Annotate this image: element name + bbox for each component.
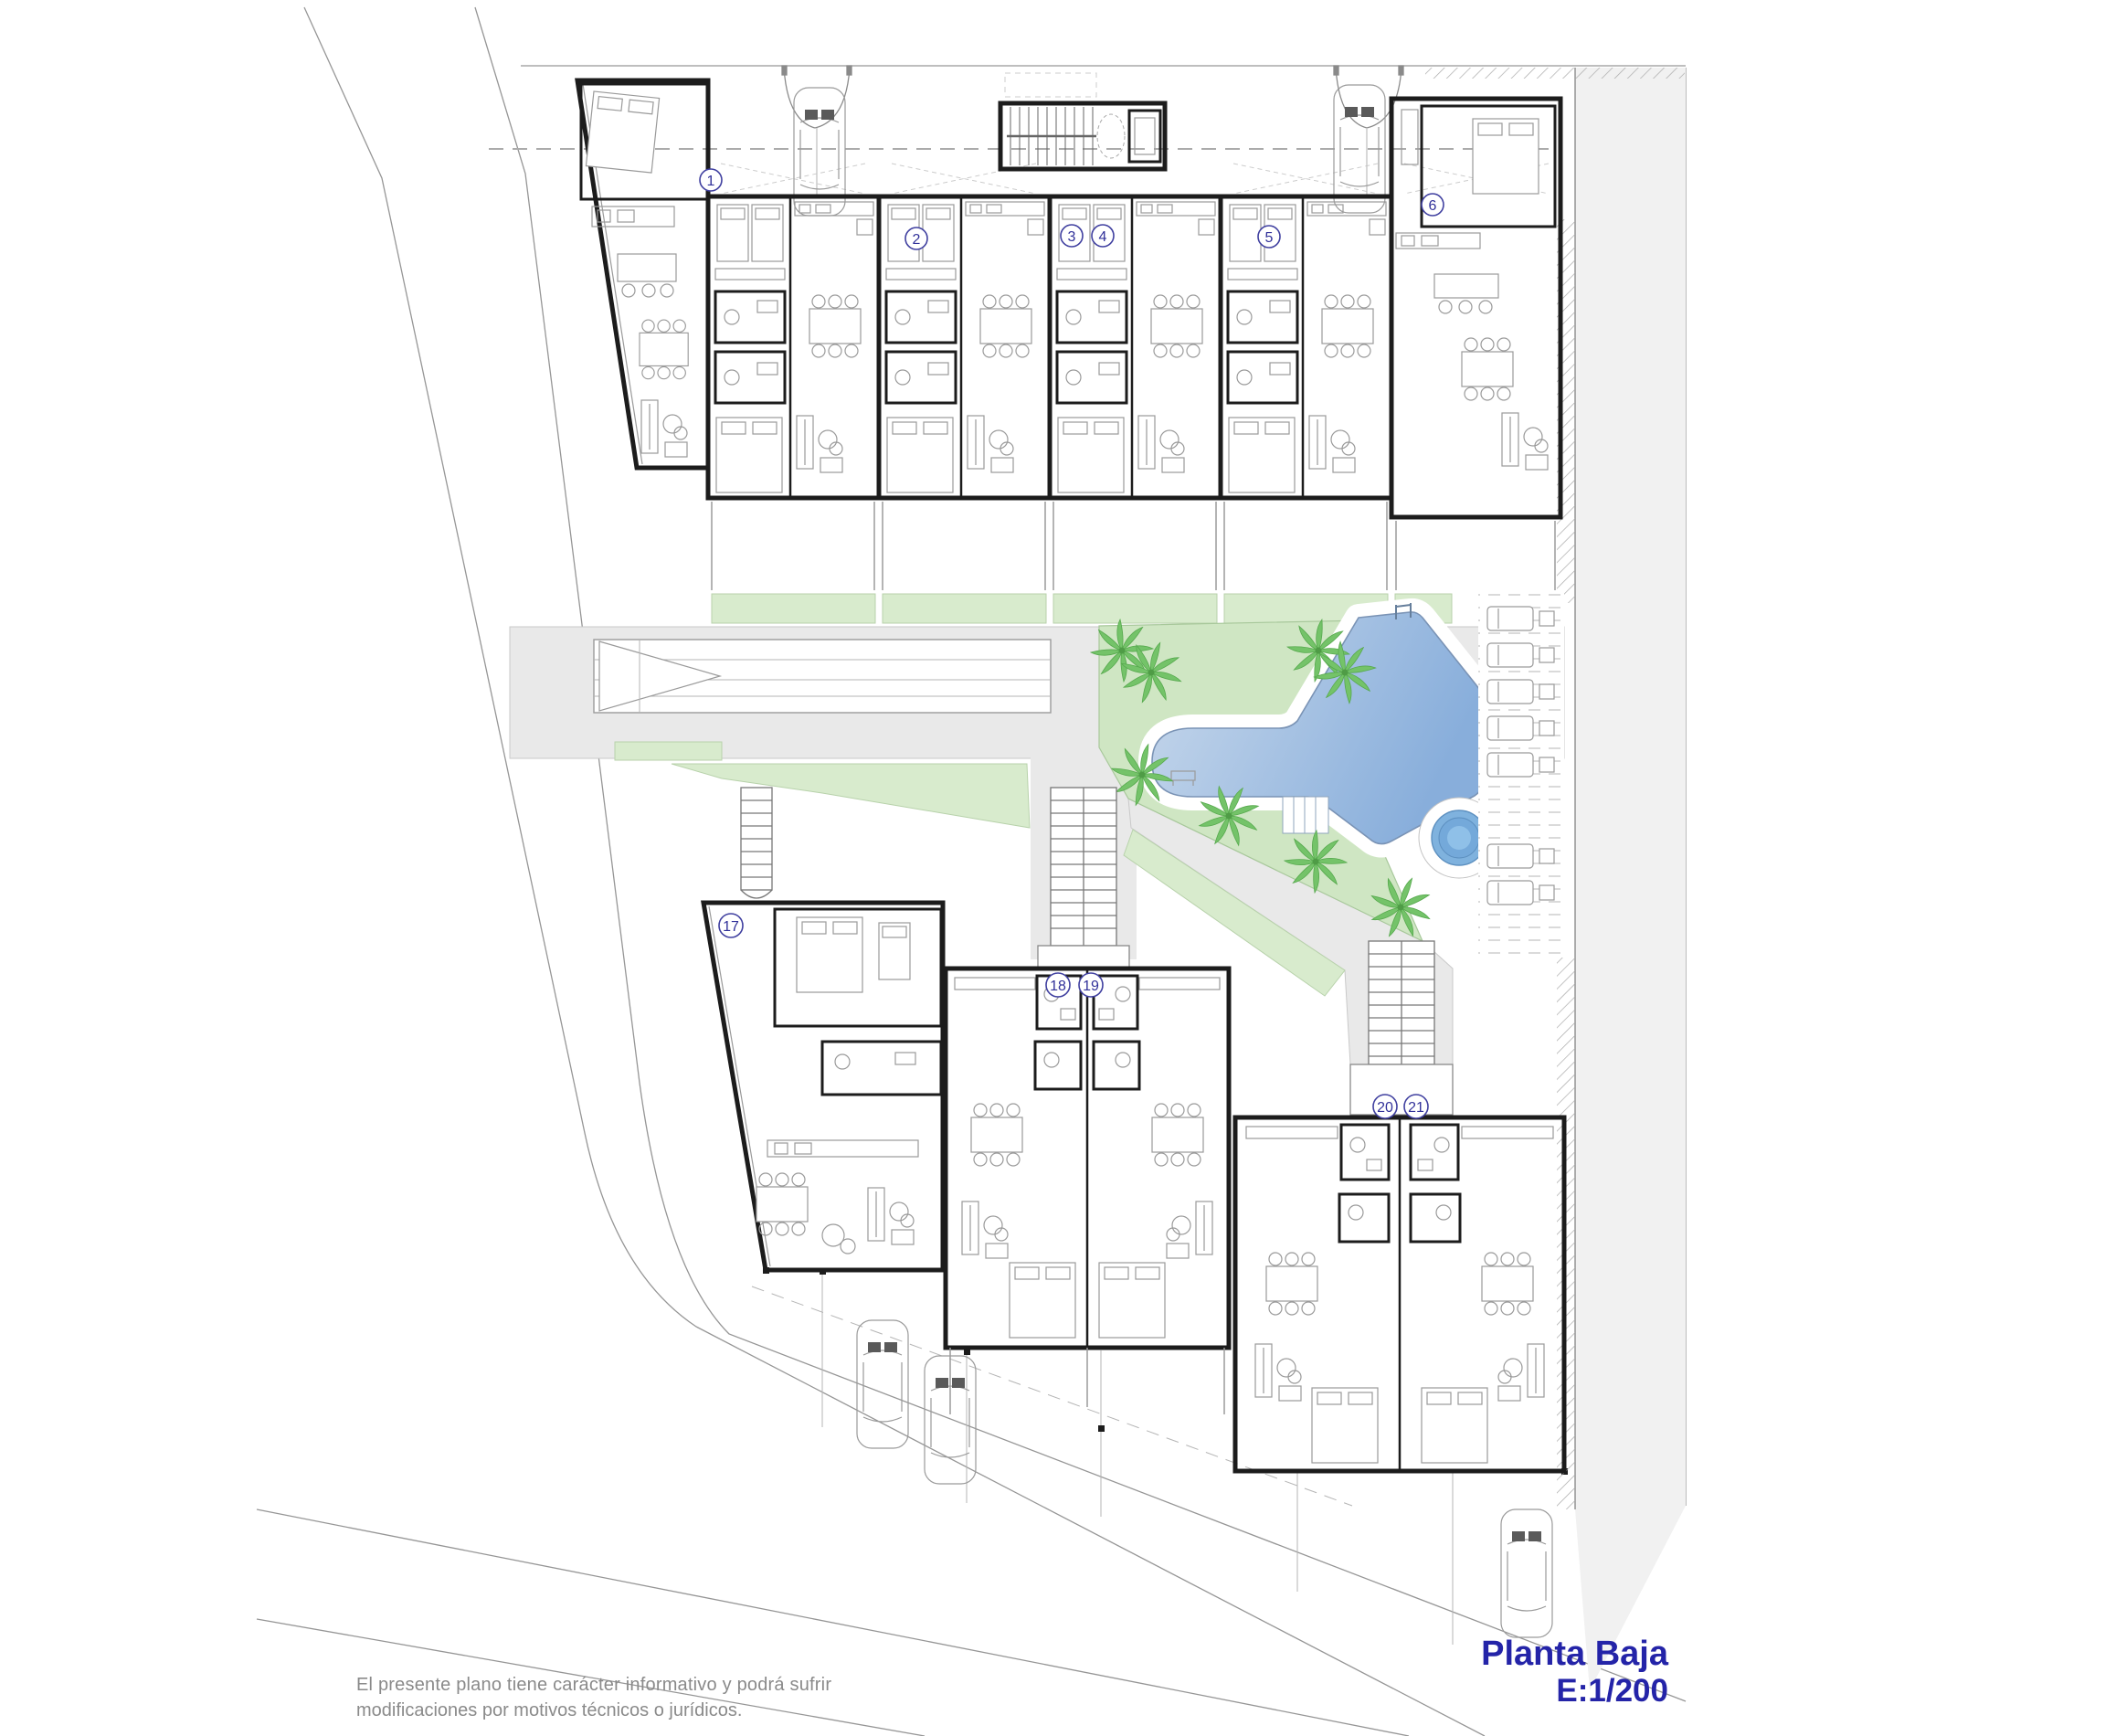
apartment-units-18-19 xyxy=(946,969,1229,1348)
pool-steps xyxy=(1283,797,1328,833)
gate-icon xyxy=(782,66,852,196)
svg-text:21: 21 xyxy=(1408,1100,1424,1116)
unit-label-2: 2 xyxy=(905,228,927,249)
apartment-module-2 xyxy=(708,196,879,498)
car-icon xyxy=(1501,1509,1552,1637)
car-icon xyxy=(857,1320,908,1448)
site-plan-drawing: 1 2 3 4 5 6 17 18 xyxy=(0,0,2105,1736)
sun-lounger-deck xyxy=(1478,592,1564,958)
unit-label-5: 5 xyxy=(1258,226,1280,248)
apartment-units-20-21 xyxy=(1235,1117,1564,1471)
unit-label-17: 17 xyxy=(719,914,743,937)
svg-text:4: 4 xyxy=(1099,229,1107,245)
unit-label-6: 6 xyxy=(1422,194,1444,216)
svg-text:3: 3 xyxy=(1068,229,1076,245)
unit-label-21: 21 xyxy=(1404,1095,1428,1118)
stairs-west xyxy=(741,788,772,898)
svg-text:17: 17 xyxy=(723,919,739,935)
unit-label-1: 1 xyxy=(700,169,722,191)
drawing-scale: E:1/200 xyxy=(1556,1673,1668,1709)
green-wedge-west xyxy=(672,764,1030,828)
terrace-stubs-18-19 xyxy=(950,1348,1224,1414)
svg-text:20: 20 xyxy=(1377,1100,1393,1116)
unit-label-20: 20 xyxy=(1373,1095,1397,1118)
stairs-18-19 xyxy=(1038,788,1129,968)
apartment-unit-17 xyxy=(703,903,943,1270)
drawing-title: Planta Baja xyxy=(1481,1635,1669,1673)
unit-label-3: 3 xyxy=(1061,225,1083,247)
disclaimer-note: El presente plano tiene carácter informa… xyxy=(356,1675,831,1720)
apartment-unit-1 xyxy=(577,80,708,468)
unit-label-19: 19 xyxy=(1079,973,1103,997)
apartment-module-5 xyxy=(1221,196,1391,498)
parking-ramp xyxy=(594,640,1051,713)
unit-label-18: 18 xyxy=(1046,973,1070,997)
apartment-unit-6 xyxy=(1391,99,1560,517)
svg-text:1: 1 xyxy=(707,174,715,189)
svg-text:2: 2 xyxy=(913,232,921,248)
stair-core xyxy=(1000,73,1165,169)
title-block: Planta Baja E:1/200 xyxy=(1481,1635,1669,1709)
apartment-module-3 xyxy=(879,196,1050,498)
svg-text:6: 6 xyxy=(1429,198,1437,214)
unit-label-4: 4 xyxy=(1092,225,1114,247)
svg-text:5: 5 xyxy=(1265,230,1274,246)
disclaimer-line-2: modificaciones por motivos técnicos o ju… xyxy=(356,1700,742,1720)
svg-text:19: 19 xyxy=(1083,979,1099,994)
hatch-strip-top xyxy=(1425,68,1685,79)
storage-dashed xyxy=(1005,73,1096,97)
disclaimer-line-1: El presente plano tiene carácter informa… xyxy=(356,1675,831,1695)
floor-plan-page: 1 2 3 4 5 6 17 18 xyxy=(0,0,2105,1736)
svg-text:18: 18 xyxy=(1050,979,1066,994)
north-building xyxy=(489,66,1560,590)
